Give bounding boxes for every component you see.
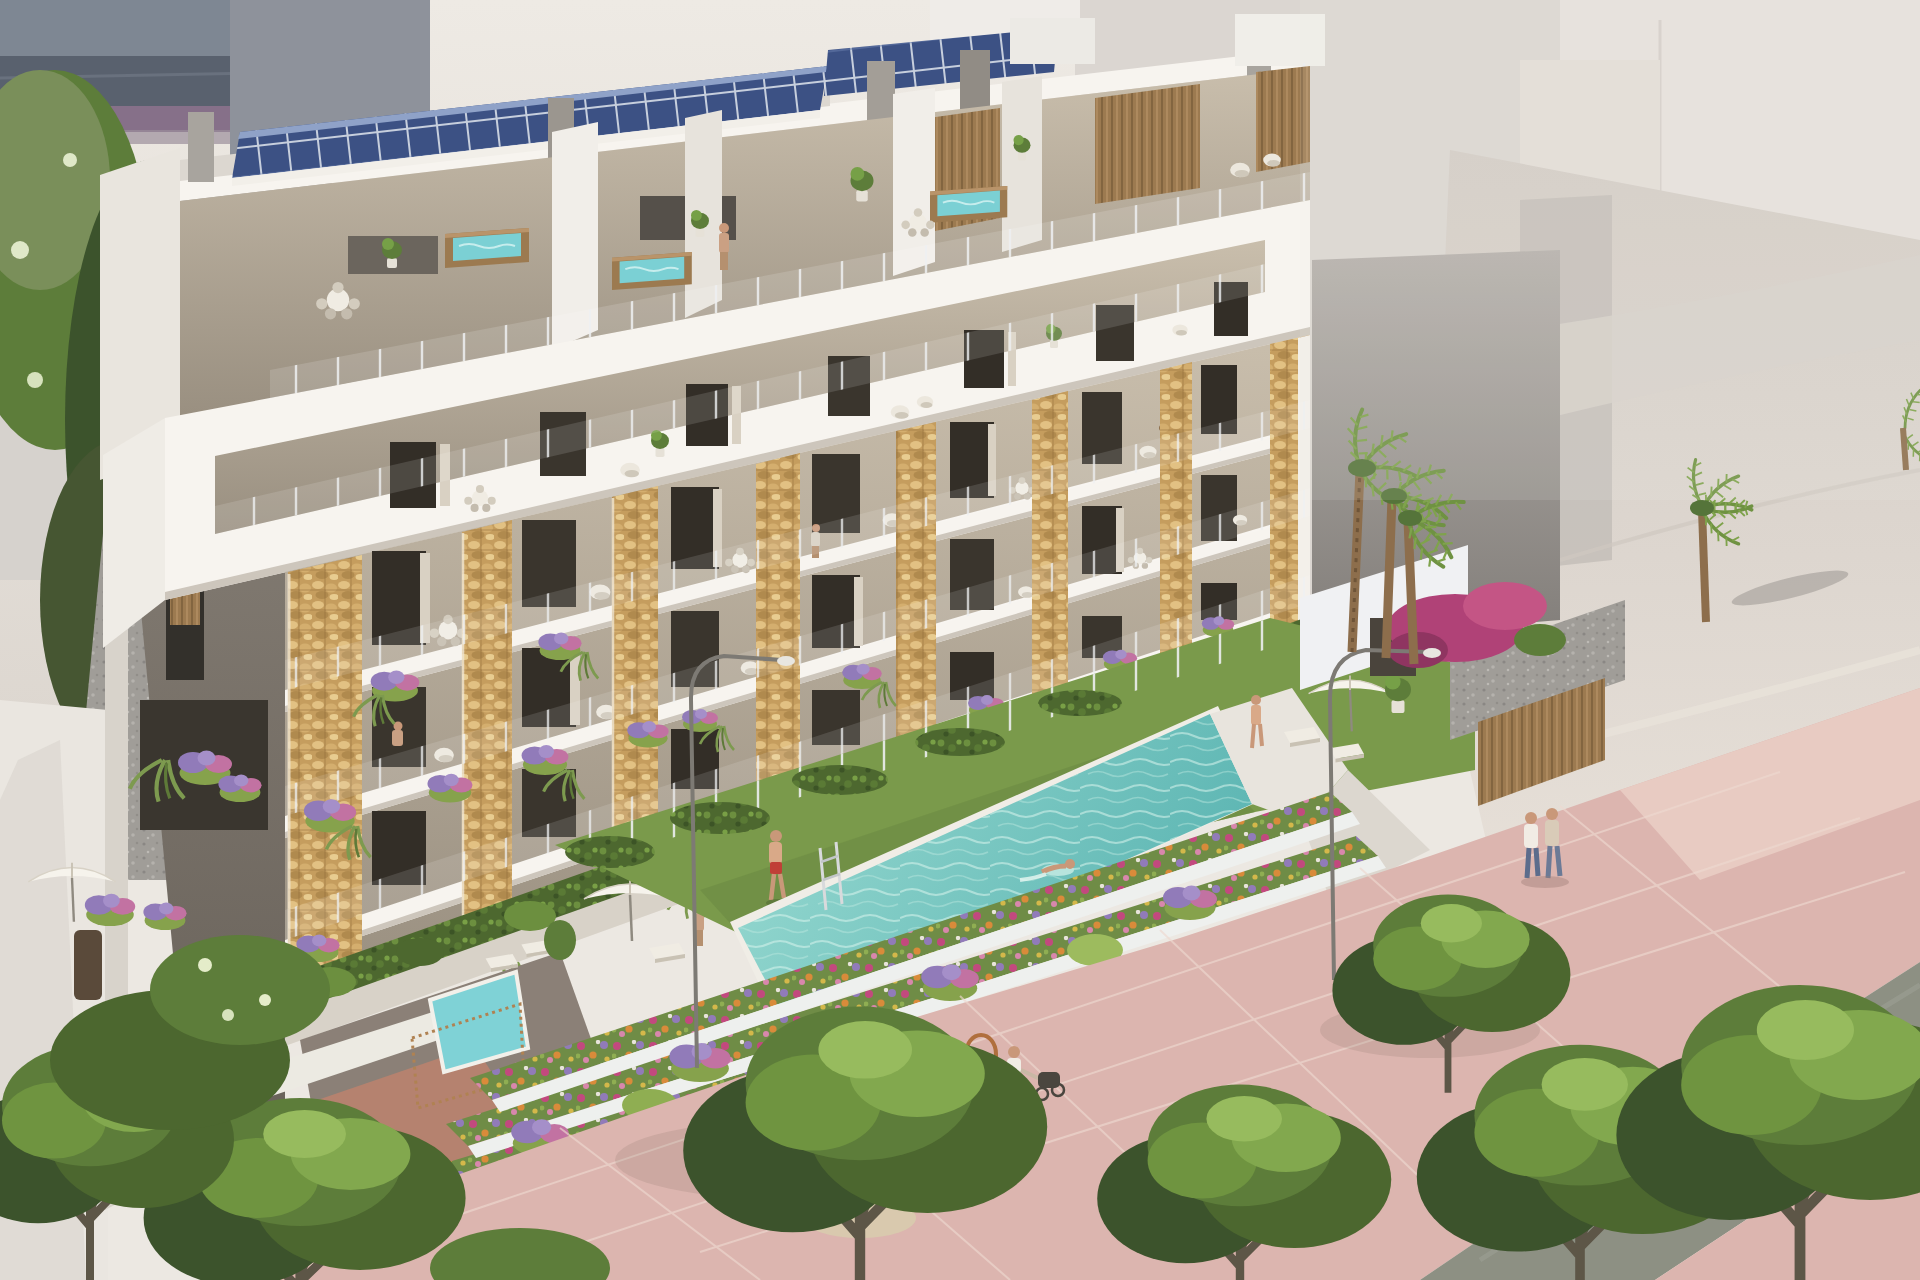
fence-hedge — [792, 765, 888, 795]
hot-tub — [612, 252, 692, 290]
fence-hedge — [1038, 690, 1122, 716]
roof-box — [1010, 18, 1095, 64]
small-palm — [544, 920, 576, 960]
roof-divider — [188, 112, 214, 182]
hot-tub — [930, 186, 1007, 223]
bougainvillea-light — [1463, 582, 1547, 630]
hot-tub — [445, 228, 529, 268]
balcony-chair — [917, 396, 934, 408]
fence-hedge — [915, 728, 1005, 756]
wood-louver-wall — [1095, 84, 1200, 204]
blossom — [11, 241, 29, 259]
terrace-chair — [1263, 154, 1281, 167]
balcony-chair — [620, 463, 640, 477]
blossom — [27, 372, 43, 388]
architectural-render — [0, 0, 1920, 1280]
roof-divider — [867, 61, 895, 124]
balcony-chair — [891, 405, 910, 419]
blossom — [259, 994, 271, 1006]
blossom — [63, 153, 77, 167]
bougainvillea-foliage — [1514, 624, 1566, 656]
haze — [1300, 0, 1920, 500]
terrace-chair — [1230, 163, 1250, 177]
person-balcony-seated — [392, 722, 403, 747]
blossom-bush — [150, 935, 330, 1045]
scene-canvas — [0, 0, 1920, 1280]
blossom — [222, 1009, 234, 1021]
fence-hedge — [565, 836, 655, 868]
blossom — [198, 958, 212, 972]
balcony-chair — [1172, 324, 1187, 335]
fence-hedge — [670, 802, 770, 834]
wooden-chair — [74, 930, 102, 1000]
roof-divider — [960, 50, 990, 116]
person-rooftop — [719, 223, 729, 270]
